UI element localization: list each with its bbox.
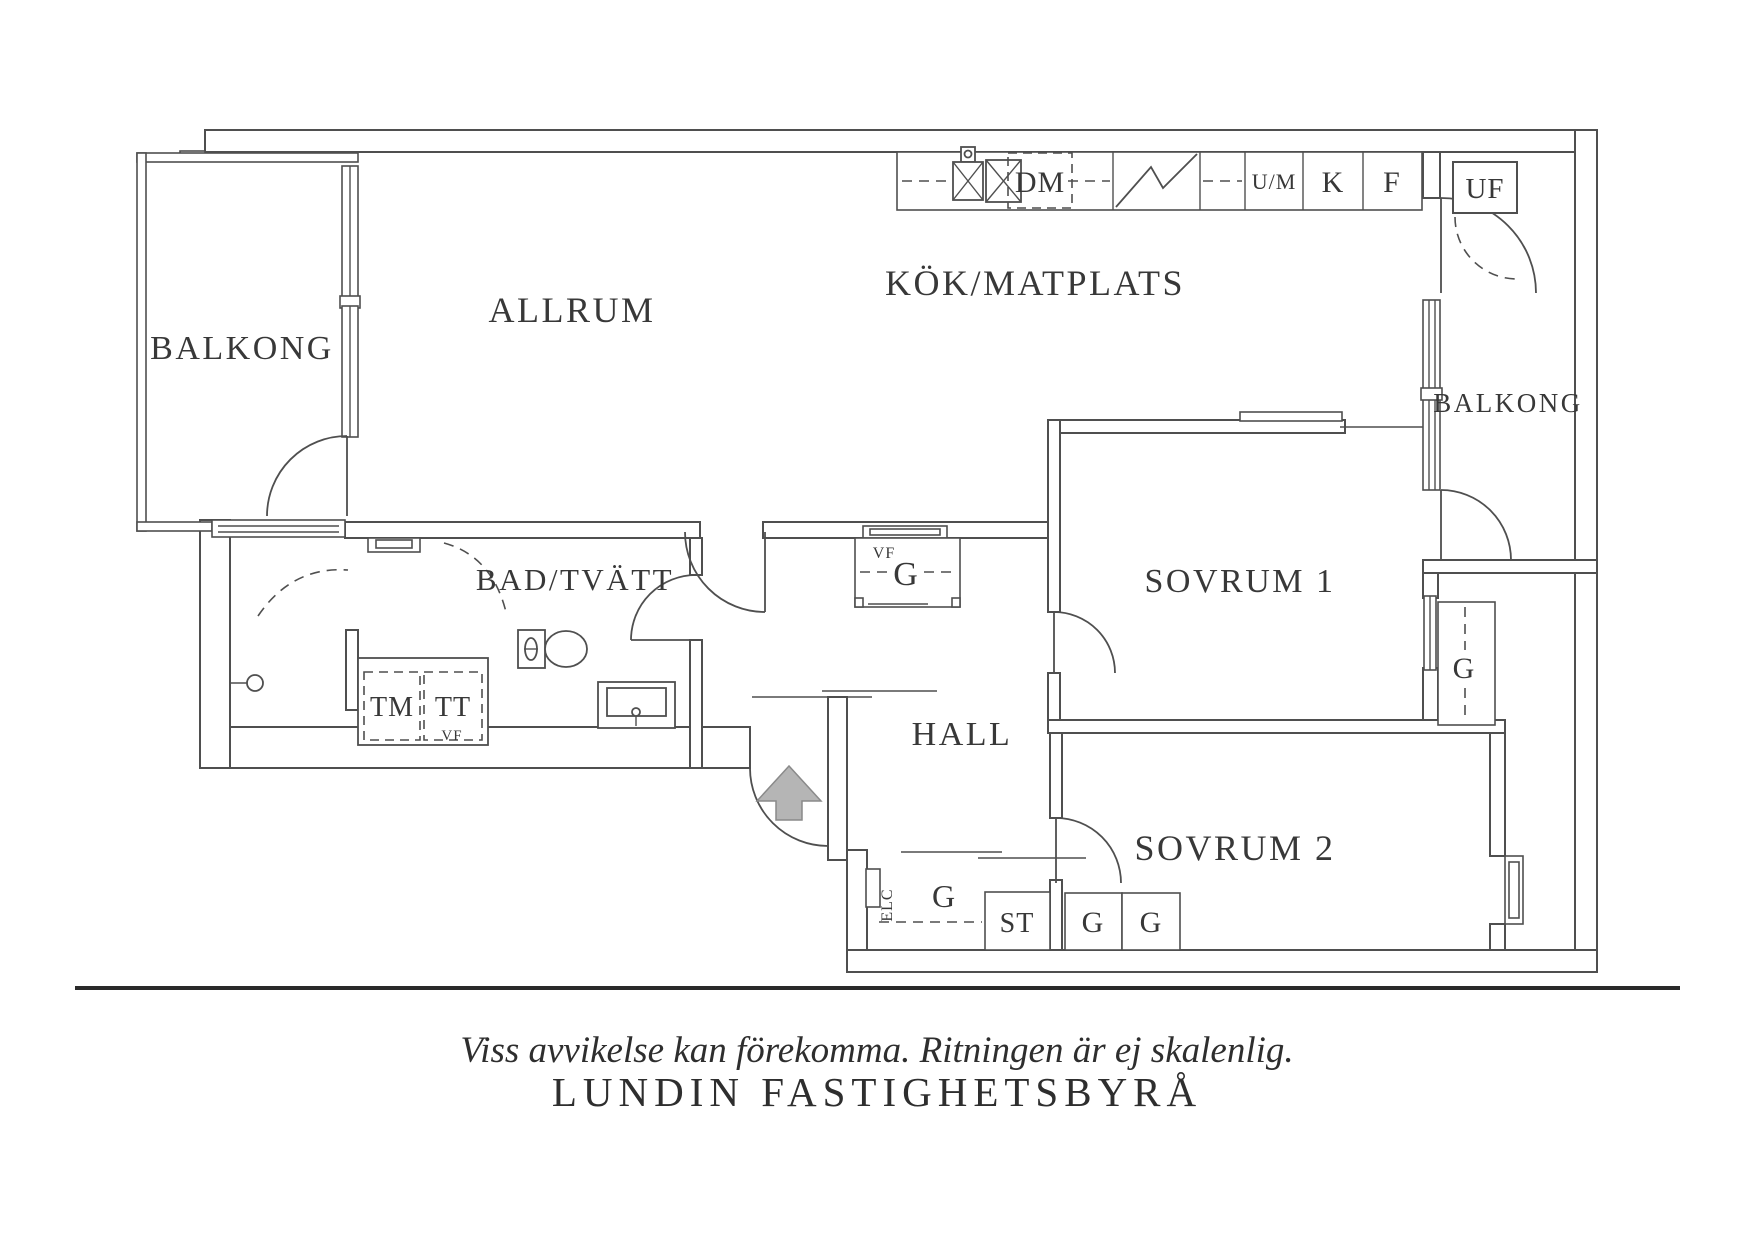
shower-door-swing [258,570,348,616]
label-fridge: K [1322,166,1345,199]
label-freezer: F [1383,166,1401,199]
room-label-bedroom1: SOVRUM 1 [1145,563,1336,600]
sliding-door [901,852,1086,858]
label-dishwasher: DM [1015,166,1065,199]
label-electrical: ELC [879,888,896,921]
room-label-balcony-left: BALKONG [150,330,334,367]
label-hall-vf: VF [873,545,895,562]
footer-disclaimer: Viss avvikelse kan förekomma. Ritningen … [460,1030,1293,1071]
label-outdoor-storage: UF [1465,173,1504,205]
door-swing [267,436,347,516]
room-label-bedroom2: SOVRUM 2 [1134,828,1335,868]
room-label-bathroom: BAD/TVÄTT [476,562,674,597]
hall-structure [685,532,1086,858]
room-label-hall: HALL [912,716,1013,753]
room-label-livingroom: ALLRUM [489,290,656,330]
label-tumble-dryer: TT [435,692,471,723]
balcony-right-structure [1421,162,1536,560]
room-label-kitchen: KÖK/MATPLATS [885,263,1185,303]
label-bedroom2-g2: G [1140,906,1163,939]
washbasin-icon [598,682,675,728]
window [1505,856,1523,924]
label-oven-microwave: U/M [1252,169,1297,194]
door-swing [1441,490,1511,560]
entrance-arrow-icon [757,766,821,820]
window [1424,596,1436,670]
floor-plan: BALKONG ALLRUM KÖK/MATPLATS BALKONG BAD/… [0,0,1754,1240]
label-corridor-g: G [932,878,956,914]
door-swing [1054,612,1115,673]
window [340,166,360,437]
footer: Viss avvikelse kan förekomma. Ritningen … [75,986,1680,1115]
window [212,520,345,537]
label-washing-machine: TM [370,692,414,723]
footer-brand: LUNDIN FASTIGHETSBYRÅ [552,1069,1202,1115]
label-laundry-vf: VF [441,728,462,744]
label-cleaning-closet: ST [1000,908,1035,939]
wall-knob-icon [230,675,263,691]
room-label-balcony-right: BALKONG [1433,388,1583,418]
label-bedroom2-g1: G [1082,906,1105,939]
label-hall-g: G [893,556,919,593]
label-bedroom1-g: G [1453,652,1476,685]
divider-line [75,986,1680,990]
toilet-icon [518,630,587,668]
floor-plan-page: BALKONG ALLRUM KÖK/MATPLATS BALKONG BAD/… [0,0,1754,1240]
door-swing [1056,818,1121,883]
